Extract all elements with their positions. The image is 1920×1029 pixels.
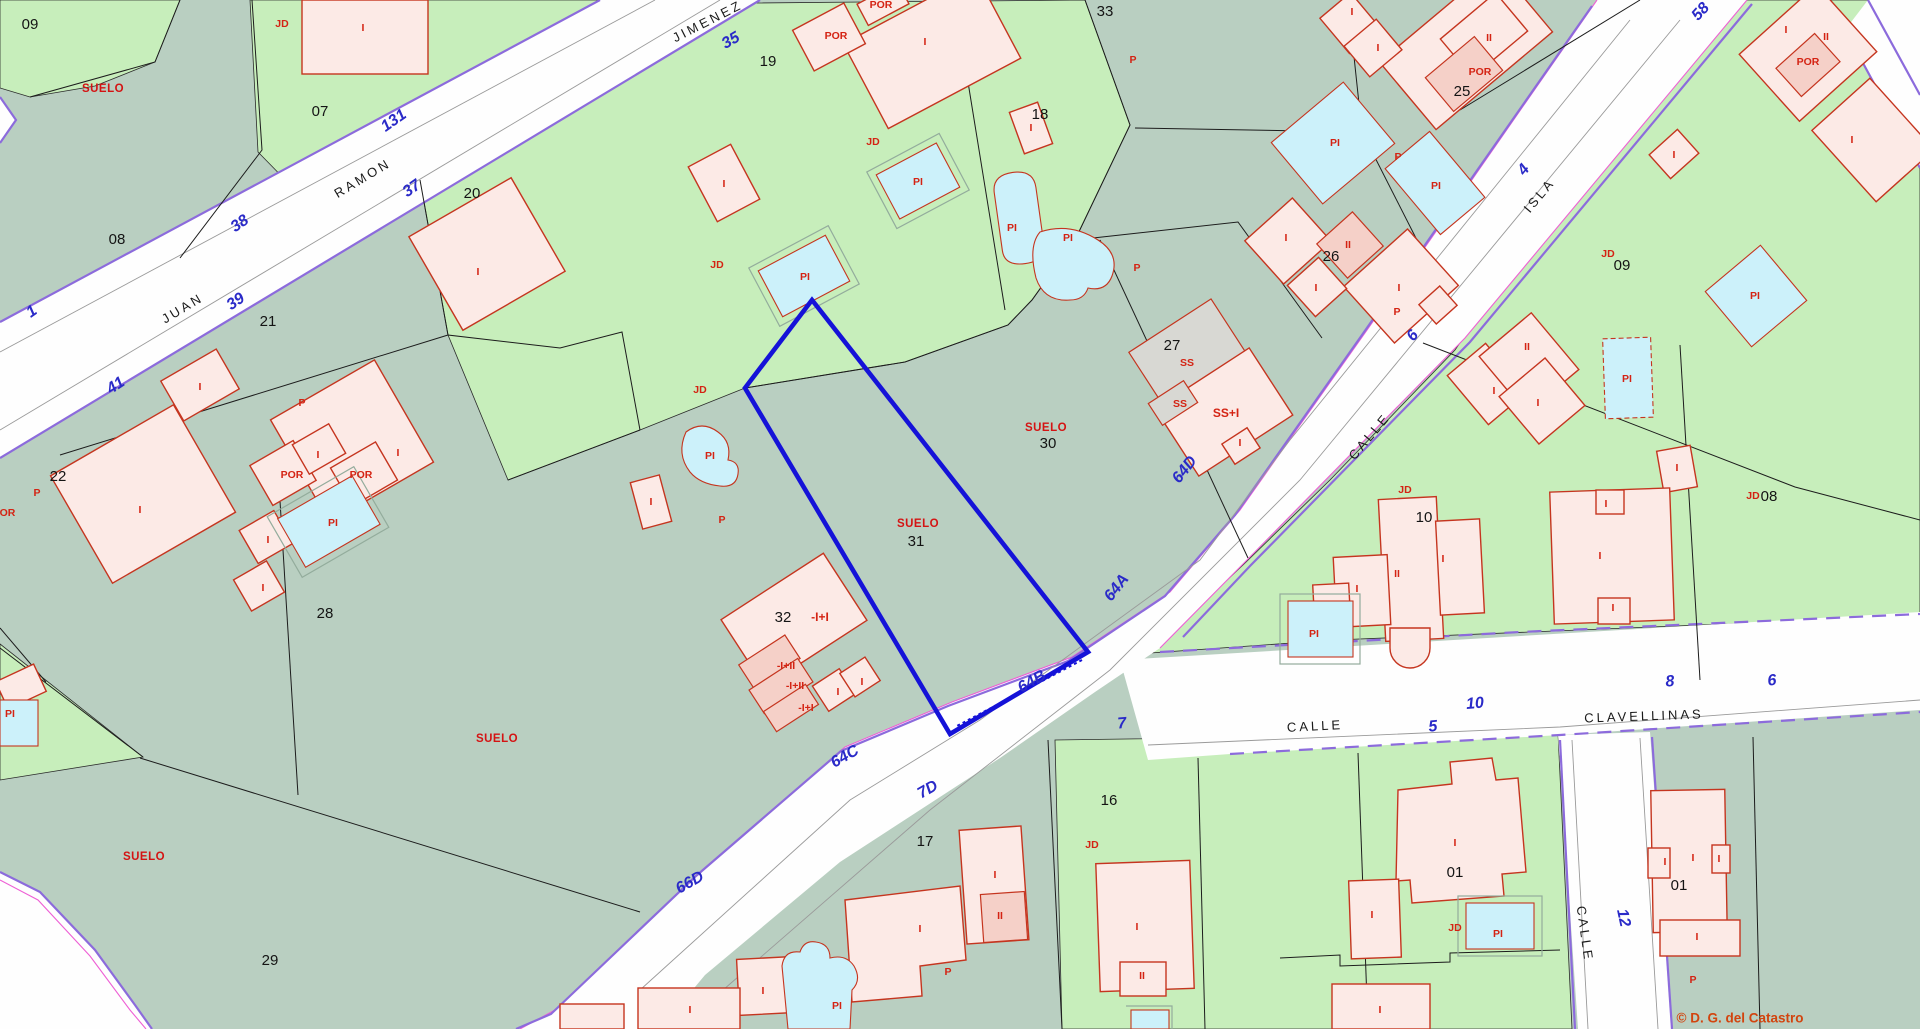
map-label-red: POR (1797, 56, 1820, 68)
map-label-red: I (1537, 397, 1540, 409)
map-label-bnum: 12 (1613, 907, 1633, 928)
map-label-red: PI (1063, 232, 1073, 244)
map-label-red: I (477, 266, 480, 278)
map-label-red: P (298, 397, 305, 409)
map-label-red: I (1692, 852, 1695, 864)
map-label-red: P (33, 487, 40, 499)
map-label-red: I (861, 676, 864, 688)
map-label-red: I (1785, 24, 1788, 36)
map-label-red: I (689, 1004, 692, 1016)
map-label-red: JD (275, 18, 289, 30)
map-label-red: I (994, 869, 997, 881)
map-label-red: JD (866, 136, 880, 148)
map-label-red: POR (0, 507, 16, 519)
map-label-bnum: 10 (1465, 694, 1484, 713)
map-label-red: II (1823, 31, 1829, 43)
map-label-suelo: SUELO (897, 518, 939, 530)
map-label-bnum: 8 (1665, 673, 1675, 691)
map-label-red: II (1345, 239, 1351, 251)
map-label-pnum: 30 (1040, 435, 1057, 452)
map-label-red: PI (705, 450, 715, 462)
map-label-red: JD (1085, 839, 1099, 851)
map-label-red: I (1377, 42, 1380, 54)
map-label-pnum: 09 (22, 16, 39, 33)
map-label-pnum: 08 (109, 231, 126, 248)
map-label-red: I (837, 686, 840, 698)
map-label-red: P (1129, 54, 1136, 66)
map-label-pnum: 10 (1416, 509, 1433, 526)
map-label-suelo: SUELO (123, 851, 165, 863)
map-label-red: JD (710, 259, 724, 271)
map-label-red: -I+I (798, 702, 814, 714)
map-label-red: SS (1180, 357, 1194, 369)
map-label-pnum: 09 (1614, 257, 1631, 274)
map-label-pnum: 27 (1164, 337, 1181, 354)
map-label-redm: SS+I (1213, 406, 1239, 420)
map-label-bnum: 64A (1101, 571, 1132, 605)
map-label-red: -I+II (777, 660, 795, 672)
cadastral-map-viewport[interactable]: JUANRAMONJIMENEZCALLEISLACALLECLAVELLINA… (0, 0, 1920, 1029)
map-label-red: I (924, 36, 927, 48)
map-label-wm: © D. G. del Catastro (1677, 1011, 1804, 1026)
map-label-red: -I+II (786, 680, 804, 692)
map-label-red: SS (1173, 398, 1187, 410)
map-label-pnum: 25 (1454, 83, 1471, 100)
map-label-red: I (1239, 437, 1242, 449)
map-label-red: I (262, 582, 265, 594)
map-label-red: JD (1601, 248, 1615, 260)
map-label-pnum: 26 (1323, 248, 1340, 265)
map-label-bnum: 7 (1117, 715, 1128, 733)
map-label-pnum: 16 (1101, 792, 1118, 809)
map-label-red: I (1676, 462, 1679, 474)
map-label-red: POR (281, 469, 304, 481)
map-label-red: PI (1007, 222, 1017, 234)
map-label-red: P (1393, 306, 1400, 318)
map-label-red: I (1371, 909, 1374, 921)
map-label-red: I (1315, 282, 1318, 294)
map-label-suelo: SUELO (476, 733, 518, 745)
map-label-pnum: 31 (908, 533, 925, 550)
map-label-red: I (1030, 122, 1033, 134)
map-label-red: I (362, 22, 365, 34)
map-label-pnum: 08 (1761, 488, 1778, 505)
map-label-red: POR (870, 0, 893, 11)
map-label-red: II (1394, 568, 1400, 580)
map-label-pnum: 01 (1447, 864, 1464, 881)
map-label-suelo: SUELO (82, 83, 124, 95)
map-label-pnum: 18 (1032, 106, 1049, 123)
map-label-red: P (1394, 151, 1401, 163)
map-label-red: PI (1330, 137, 1340, 149)
map-label-red: I (1696, 931, 1699, 943)
map-label-red: PI (1622, 373, 1632, 385)
map-label-red: I (1442, 553, 1445, 565)
map-label-red: I (199, 381, 202, 393)
map-label-red: I (139, 504, 142, 516)
map-label-pnum: 19 (760, 53, 777, 70)
map-label-pnum: 17 (917, 833, 934, 850)
map-label-red: PI (1750, 290, 1760, 302)
map-label-red: I (267, 534, 270, 546)
map-label-red: II (997, 910, 1003, 922)
map-label-pnum: 01 (1671, 877, 1688, 894)
map-label-red: I (1398, 282, 1401, 294)
map-label-red: PI (5, 708, 15, 720)
map-label-bnum: 6 (1767, 672, 1777, 690)
map-label-red: I (762, 985, 765, 997)
map-label-red: P (718, 514, 725, 526)
map-label-pnum: 22 (50, 468, 67, 485)
map-label-red: P (1689, 974, 1696, 986)
map-label-red: I (723, 178, 726, 190)
map-label-red: JD (1746, 490, 1760, 502)
map-label-red: JD (1448, 922, 1462, 934)
map-label-red: I (1851, 134, 1854, 146)
map-label-red: JD (693, 384, 707, 396)
map-label-red: II (1486, 32, 1492, 44)
map-label-red: II (1139, 970, 1145, 982)
map-label-red: PI (800, 271, 810, 283)
map-label-red: POR (1469, 66, 1492, 78)
map-label-red: I (317, 449, 320, 461)
map-label-red: P (944, 966, 951, 978)
map-label-redm: -I+I (811, 610, 829, 624)
map-label-red: PI (1309, 628, 1319, 640)
cadastral-map[interactable]: JUANRAMONJIMENEZCALLEISLACALLECLAVELLINA… (0, 0, 1920, 1029)
map-label-pnum: 32 (775, 609, 792, 626)
map-label-red: PI (913, 176, 923, 188)
map-label-street: CALLE (1286, 717, 1343, 735)
map-label-red: I (1351, 6, 1354, 18)
map-label-red: PI (832, 1000, 842, 1012)
map-label-red: P (1133, 262, 1140, 274)
map-label-red: I (1664, 856, 1667, 868)
map-label-suelo: SUELO (1025, 422, 1067, 434)
map-label-red: PI (1493, 928, 1503, 940)
map-label-red: II (1524, 341, 1530, 353)
map-label-red: JD (1398, 484, 1412, 496)
map-label-red: I (1285, 232, 1288, 244)
map-label-red: I (919, 923, 922, 935)
map-label-red: PI (328, 517, 338, 529)
map-label-pnum: 33 (1097, 3, 1114, 20)
map-label-red: I (1493, 385, 1496, 397)
map-label-red: I (1612, 602, 1615, 614)
map-label-red: I (1454, 837, 1457, 849)
map-label-red: PI (1431, 180, 1441, 192)
map-label-red: I (1605, 498, 1608, 510)
map-label-red: I (1356, 583, 1359, 595)
map-label-red: I (1673, 149, 1676, 161)
map-label-red: POR (825, 30, 848, 42)
map-label-red: I (650, 496, 653, 508)
map-label-red: I (1379, 1004, 1382, 1016)
map-label-pnum: 28 (317, 605, 334, 622)
map-label-red: I (1718, 853, 1721, 865)
map-label-red: I (1599, 550, 1602, 562)
map-label-pnum: 21 (260, 313, 277, 330)
map-label-red: POR (350, 469, 373, 481)
map-label-red: I (1136, 921, 1139, 933)
map-label-pnum: 29 (262, 952, 279, 969)
map-label-pnum: 20 (464, 185, 481, 202)
map-label-pnum: 07 (312, 103, 329, 120)
map-label-red: I (397, 447, 400, 459)
